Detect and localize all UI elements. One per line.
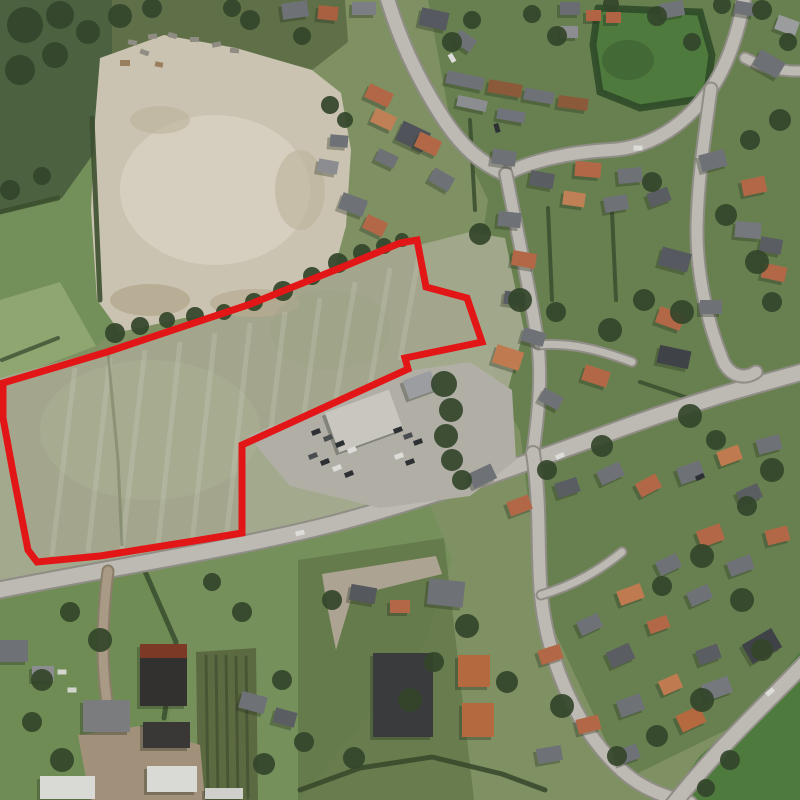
tree <box>240 10 260 30</box>
tree <box>751 639 773 661</box>
building <box>147 766 197 792</box>
tree <box>670 300 694 324</box>
ground-patch <box>110 284 190 316</box>
tree <box>42 42 68 68</box>
tree <box>455 614 479 638</box>
building <box>586 10 601 21</box>
tree <box>591 435 613 457</box>
tree <box>322 590 342 610</box>
tree <box>720 750 740 770</box>
car <box>58 670 67 675</box>
tree <box>678 404 702 428</box>
tree <box>690 688 714 712</box>
building <box>390 600 410 613</box>
building <box>427 578 466 608</box>
tree <box>272 670 292 690</box>
tree <box>607 746 627 766</box>
tree <box>294 732 314 752</box>
tree <box>431 371 457 397</box>
building <box>617 167 642 184</box>
tree <box>642 172 662 192</box>
car <box>634 146 643 151</box>
tree <box>452 470 472 490</box>
tree <box>293 27 311 45</box>
tree <box>683 33 701 51</box>
tree <box>537 460 557 480</box>
tree <box>547 26 567 46</box>
tree <box>108 4 132 28</box>
tree <box>715 204 737 226</box>
tree <box>76 20 100 44</box>
tree <box>50 748 74 772</box>
building <box>352 2 376 15</box>
building <box>205 788 243 799</box>
tree <box>690 544 714 568</box>
ground-patch <box>602 40 654 80</box>
tree <box>762 292 782 312</box>
building <box>574 161 601 178</box>
car <box>68 688 77 693</box>
tree <box>442 32 462 52</box>
tree <box>343 747 365 769</box>
ground-patch <box>270 290 390 370</box>
building <box>83 700 130 732</box>
hedgerow <box>206 656 208 798</box>
tree <box>131 317 149 335</box>
tree <box>737 496 757 516</box>
tree <box>598 318 622 342</box>
hedgerow <box>226 656 228 798</box>
building <box>458 655 490 687</box>
building <box>140 658 187 706</box>
tree <box>60 602 80 622</box>
tree <box>22 712 42 732</box>
building <box>143 722 190 748</box>
tree <box>33 167 51 185</box>
tree <box>745 250 769 274</box>
tree <box>523 5 541 23</box>
tree <box>203 573 221 591</box>
tree <box>550 694 574 718</box>
hedgerow <box>216 656 218 798</box>
aerial-viewport <box>0 0 800 800</box>
tree <box>253 753 275 775</box>
tree <box>441 449 463 471</box>
aerial-photo <box>0 0 800 800</box>
tree <box>463 11 481 29</box>
tree <box>46 1 74 29</box>
tree <box>321 96 339 114</box>
ground-patch <box>130 106 190 134</box>
building <box>40 776 95 799</box>
tree <box>779 33 797 51</box>
building <box>606 12 621 23</box>
tree <box>760 458 784 482</box>
tree <box>652 576 672 596</box>
tree <box>546 302 566 322</box>
tree <box>398 688 422 712</box>
tree <box>508 288 532 312</box>
tree <box>706 430 726 450</box>
tree <box>31 669 53 691</box>
tree <box>0 180 20 200</box>
building <box>560 2 580 15</box>
tree <box>646 725 668 747</box>
tree <box>439 398 463 422</box>
tree <box>424 652 444 672</box>
tree <box>730 588 754 612</box>
tree <box>752 0 772 20</box>
tree <box>633 289 655 311</box>
tree <box>496 671 518 693</box>
hedgerow <box>236 657 238 798</box>
tree <box>740 130 760 150</box>
building <box>700 300 722 314</box>
debris <box>230 48 239 54</box>
tree <box>769 109 791 131</box>
tree <box>232 602 252 622</box>
building <box>0 640 28 662</box>
building <box>734 221 761 239</box>
tree <box>105 323 125 343</box>
tree <box>647 6 667 26</box>
building <box>497 211 521 228</box>
building <box>317 5 338 21</box>
tree <box>697 779 715 797</box>
hedgerow <box>246 657 248 798</box>
tree <box>159 312 175 328</box>
tree <box>5 55 35 85</box>
debris <box>120 60 130 66</box>
building <box>140 644 187 658</box>
debris <box>190 37 199 42</box>
building <box>330 134 349 148</box>
tree <box>337 112 353 128</box>
tree <box>469 223 491 245</box>
tree <box>434 424 458 448</box>
tree <box>88 628 112 652</box>
building <box>462 703 494 737</box>
tree <box>7 7 43 43</box>
